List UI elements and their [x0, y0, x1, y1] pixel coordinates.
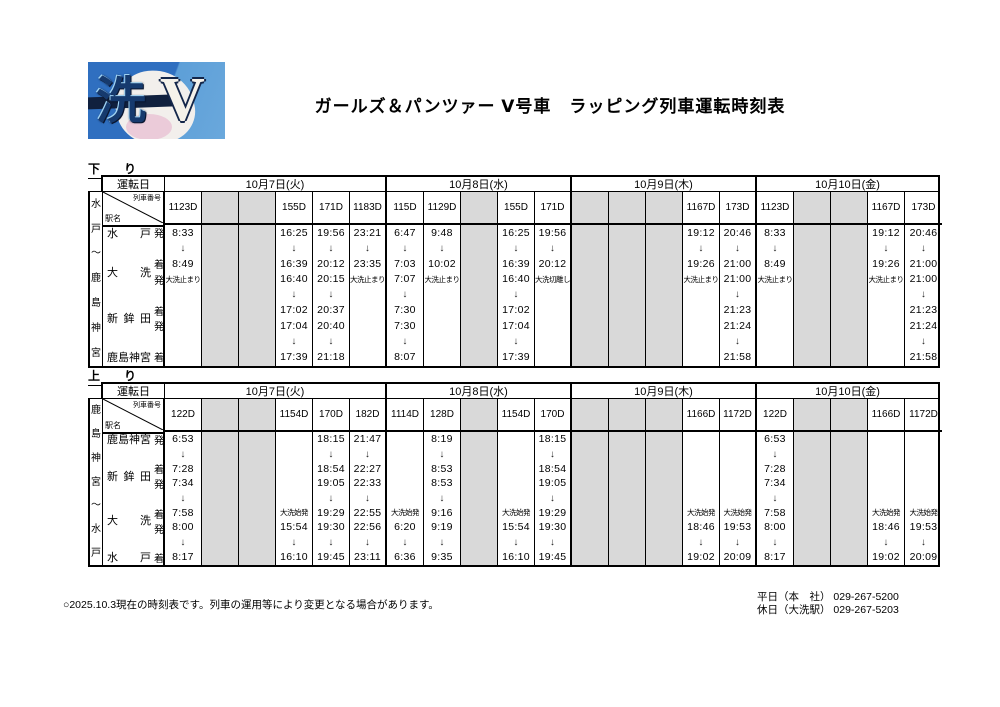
time-cell: 21:18	[313, 349, 349, 365]
empty-cell	[831, 256, 867, 272]
route-char: 宮	[91, 348, 101, 359]
train-number-cell: 1166D	[683, 399, 719, 432]
train-number-cell: 1172D	[720, 399, 755, 432]
train-times	[461, 225, 497, 365]
empty-train-number-cell	[831, 399, 867, 432]
empty-cell	[572, 476, 608, 491]
empty-cell	[461, 535, 497, 550]
empty-cell	[794, 287, 830, 303]
time-cell: 22:56	[350, 520, 385, 535]
arrow-cell: ↓	[535, 241, 570, 257]
time-cell: 19:12	[683, 225, 719, 241]
time-cell: 7:58	[757, 505, 793, 520]
empty-train-number-cell	[239, 399, 275, 432]
empty-cell	[868, 334, 904, 350]
arrow-cell: ↓	[498, 287, 534, 303]
arrow-cell: ↓	[165, 447, 201, 462]
empty-cell	[202, 550, 238, 565]
date-cell: 10月7日(火)	[165, 384, 387, 398]
route-char: ～	[91, 500, 101, 511]
train-number-cell: 1167D	[683, 192, 719, 225]
train-times: 19:12↓19:26大洗止まり	[683, 225, 719, 365]
empty-cell	[202, 303, 238, 319]
empty-cell	[461, 461, 497, 476]
date-cell: 10月7日(火)	[165, 177, 387, 191]
empty-cell	[683, 287, 719, 303]
empty-cell	[202, 225, 238, 241]
station-name: 新鉾田	[103, 461, 153, 490]
time-cell: 21:00	[720, 256, 755, 272]
date-cell: 10月8日(水)	[387, 384, 572, 398]
empty-cell	[794, 318, 830, 334]
note-cell: 大洗止まり	[350, 272, 385, 288]
empty-cell	[461, 287, 497, 303]
time-cell: 6:53	[757, 432, 793, 447]
empty-cell	[683, 476, 719, 491]
station-name-char: 島	[118, 349, 129, 365]
time-cell: 21:23	[720, 303, 755, 319]
empty-train-number-cell	[572, 192, 608, 225]
station-label: 鹿島神宮発	[103, 432, 165, 447]
empty-cell	[609, 349, 645, 365]
station-suffix: 着発	[153, 303, 165, 334]
contact-info: 平日（本 社） 029-267-5200 休日（大洗駅） 029-267-520…	[757, 591, 899, 617]
empty-cell	[646, 535, 682, 550]
empty-cell	[794, 349, 830, 365]
empty-cell	[609, 241, 645, 257]
time-cell: 20:09	[905, 550, 942, 565]
empty-cell	[498, 476, 534, 491]
time-cell: 17:39	[276, 349, 312, 365]
empty-cell	[461, 491, 497, 506]
empty-cell	[683, 334, 719, 350]
empty-train-number-cell	[609, 399, 645, 432]
station-name-char: 田	[140, 310, 151, 326]
train-number-cell: 1123D	[165, 192, 201, 225]
train-times	[609, 225, 645, 365]
station-suffix-char: 着	[154, 349, 164, 364]
train-times	[202, 225, 238, 365]
empty-cell	[831, 303, 867, 319]
time-cell: 18:15	[535, 432, 570, 447]
empty-cell	[720, 491, 755, 506]
train-column: 115D6:47↓7:037:07↓7:307:30↓8:07	[387, 192, 424, 366]
empty-cell	[794, 520, 830, 535]
route-char: 戸	[91, 548, 101, 559]
empty-cell	[276, 491, 312, 506]
station-suffix: 着	[153, 349, 165, 365]
empty-cell	[868, 432, 904, 447]
empty-cell	[239, 535, 275, 550]
route-char: 島	[91, 298, 101, 309]
train-no-header-label: 列車番号	[133, 193, 161, 203]
date-header-row: 運転日10月7日(火)10月8日(水)10月9日(木)10月10日(金)	[101, 175, 940, 191]
gray-column	[646, 192, 683, 366]
empty-cell	[646, 349, 682, 365]
station-name: 水戸	[103, 550, 153, 565]
time-cell: 8:53	[424, 461, 460, 476]
empty-cell	[239, 505, 275, 520]
time-cell: 21:58	[905, 349, 942, 365]
empty-cell	[831, 491, 867, 506]
time-cell: 23:21	[350, 225, 385, 241]
route-char: ～	[91, 248, 101, 259]
route-label: 鹿島神宮～水戸	[90, 399, 103, 565]
empty-cell	[239, 256, 275, 272]
empty-cell	[831, 550, 867, 565]
time-cell: 8:33	[757, 225, 793, 241]
arrow-cell: ↓	[276, 334, 312, 350]
empty-cell	[831, 334, 867, 350]
train-column: 155D16:25↓16:3916:40↓17:0217:04↓17:39	[276, 192, 313, 366]
arrow-cell: ↓	[350, 447, 385, 462]
station-label: 新鉾田着発	[103, 303, 165, 334]
empty-cell	[609, 550, 645, 565]
empty-cell	[757, 287, 793, 303]
logo-kanji: 洗	[96, 74, 146, 128]
empty-cell	[387, 476, 423, 491]
empty-cell	[424, 318, 460, 334]
page-title: ガールズ＆パンツァー Ⅴ号車 ラッピング列車運転時刻表	[250, 92, 850, 117]
empty-cell	[905, 447, 942, 462]
note-cell: 大洗始発	[720, 505, 755, 520]
empty-cell	[461, 432, 497, 447]
train-times: 19:12↓19:26大洗止まり	[868, 225, 904, 365]
time-cell: 10:02	[424, 256, 460, 272]
time-cell: 22:33	[350, 476, 385, 491]
time-cell: 22:55	[350, 505, 385, 520]
train-times: 大洗始発15:54↓16:10	[498, 432, 534, 564]
train-number-cell: 1129D	[424, 192, 460, 225]
empty-cell	[831, 272, 867, 288]
train-column: 1123D8:33↓8:49大洗止まり	[165, 192, 202, 366]
empty-cell	[831, 225, 867, 241]
empty-cell	[794, 225, 830, 241]
train-times: 大洗始発15:54↓16:10	[276, 432, 312, 564]
empty-cell	[794, 432, 830, 447]
empty-cell	[831, 447, 867, 462]
time-cell: 8:19	[424, 432, 460, 447]
empty-cell	[202, 241, 238, 257]
empty-cell	[683, 461, 719, 476]
train-times: 18:15↓18:5419:05↓19:2919:30↓19:45	[313, 432, 349, 564]
train-column: 171D19:56↓20:1220:15↓20:3720:40↓21:18	[313, 192, 350, 366]
empty-cell	[609, 432, 645, 447]
empty-cell	[202, 520, 238, 535]
empty-cell	[572, 256, 608, 272]
gray-column	[646, 399, 683, 565]
empty-cell	[387, 447, 423, 462]
train-times: 大洗始発18:46↓19:02	[868, 432, 904, 564]
station-name-char: 島	[118, 431, 129, 447]
empty-cell	[831, 287, 867, 303]
time-cell: 19:45	[313, 550, 349, 565]
time-cell: 7:34	[757, 476, 793, 491]
empty-cell	[424, 349, 460, 365]
time-cell: 20:40	[313, 318, 349, 334]
arrow-cell: ↓	[276, 287, 312, 303]
time-cell: 16:39	[498, 256, 534, 272]
time-cell: 16:25	[498, 225, 534, 241]
empty-cell	[646, 256, 682, 272]
train-column: 170D18:15↓18:5419:05↓19:2919:30↓19:45	[535, 399, 572, 565]
arrow-cell: ↓	[720, 287, 755, 303]
time-cell: 19:05	[535, 476, 570, 491]
train-number-cell: 1154D	[276, 399, 312, 432]
time-cell: 19:12	[868, 225, 904, 241]
empty-cell	[794, 505, 830, 520]
time-cell: 18:54	[313, 461, 349, 476]
train-times	[646, 225, 682, 365]
train-column: 1172D大洗始発19:53↓20:09	[720, 399, 757, 565]
arrow-cell: ↓	[165, 535, 201, 550]
empty-cell	[646, 550, 682, 565]
empty-cell	[535, 318, 570, 334]
time-cell: 8:49	[757, 256, 793, 272]
empty-cell	[239, 225, 275, 241]
empty-cell	[165, 334, 201, 350]
empty-cell	[276, 447, 312, 462]
gray-column	[461, 192, 498, 366]
station-name: 大洗	[103, 256, 153, 287]
time-cell: 21:24	[720, 318, 755, 334]
gray-column	[794, 399, 831, 565]
contact-holiday: 休日（大洗駅） 029-267-5203	[757, 604, 899, 617]
empty-cell	[794, 476, 830, 491]
empty-cell	[609, 535, 645, 550]
empty-cell	[424, 334, 460, 350]
arrow-cell: ↓	[313, 241, 349, 257]
time-cell: 18:15	[313, 432, 349, 447]
train-times	[646, 432, 682, 564]
gray-column	[572, 192, 609, 366]
empty-train-number-cell	[646, 399, 682, 432]
train-times	[239, 432, 275, 564]
footer-note: ○2025.10.3現在の時刻表です。列車の運用等により変更となる場合があります…	[63, 597, 439, 612]
arrow-cell: ↓	[313, 535, 349, 550]
empty-cell	[831, 241, 867, 257]
empty-cell	[239, 272, 275, 288]
train-number-cell: 170D	[535, 399, 570, 432]
station-suffix: 着	[153, 550, 165, 565]
empty-cell	[202, 349, 238, 365]
empty-cell	[461, 334, 497, 350]
train-number-cell: 173D	[905, 192, 942, 225]
arrow-cell: ↓	[276, 241, 312, 257]
train-number-cell: 122D	[165, 399, 201, 432]
time-cell: 7:03	[387, 256, 423, 272]
arrow-cell: ↓	[720, 334, 755, 350]
empty-cell	[609, 256, 645, 272]
empty-cell	[461, 550, 497, 565]
time-cell: 19:02	[683, 550, 719, 565]
empty-cell	[868, 461, 904, 476]
note-cell: 大洗止まり	[424, 272, 460, 288]
date-cell: 10月9日(木)	[572, 384, 757, 398]
train-column: 1183D23:21↓23:35大洗止まり	[350, 192, 387, 366]
arrow-cell: ↓	[387, 241, 423, 257]
empty-cell	[202, 272, 238, 288]
time-cell: 7:28	[757, 461, 793, 476]
station-label: 新鉾田着発	[103, 461, 165, 490]
train-times: 大洗始発19:53↓20:09	[720, 432, 755, 564]
empty-cell	[646, 241, 682, 257]
empty-cell	[757, 349, 793, 365]
note-cell: 大洗始発	[683, 505, 719, 520]
empty-cell	[683, 491, 719, 506]
arrow-cell: ↓	[498, 334, 534, 350]
time-cell: 19:30	[313, 520, 349, 535]
empty-cell	[831, 505, 867, 520]
empty-cell	[165, 349, 201, 365]
empty-cell	[239, 349, 275, 365]
empty-cell	[165, 287, 201, 303]
station-suffix-char: 着	[154, 256, 164, 271]
train-number-cell: 1183D	[350, 192, 385, 225]
train-times: 8:19↓8:538:53↓9:169:19↓9:35	[424, 432, 460, 564]
empty-cell	[535, 303, 570, 319]
time-cell: 15:54	[276, 520, 312, 535]
route-char: 神	[91, 323, 101, 334]
empty-cell	[461, 520, 497, 535]
empty-cell	[350, 318, 385, 334]
train-number-cell: 122D	[757, 399, 793, 432]
route-char: 鹿	[91, 273, 101, 284]
empty-cell	[646, 287, 682, 303]
train-column: 1114D大洗始発6:20↓6:36	[387, 399, 424, 565]
empty-cell	[868, 349, 904, 365]
gray-column	[609, 192, 646, 366]
time-cell: 6:53	[165, 432, 201, 447]
empty-cell	[572, 447, 608, 462]
empty-cell	[831, 535, 867, 550]
gray-column	[461, 399, 498, 565]
time-cell: 19:29	[313, 505, 349, 520]
station-name-char: 大	[107, 512, 118, 528]
time-cell: 18:46	[868, 520, 904, 535]
time-cell: 19:56	[313, 225, 349, 241]
empty-cell	[794, 550, 830, 565]
time-cell: 22:27	[350, 461, 385, 476]
station-name-char: 鹿	[107, 431, 118, 447]
empty-cell	[350, 349, 385, 365]
train-times: 16:25↓16:3916:40↓17:0217:04↓17:39	[276, 225, 312, 365]
time-cell: 17:39	[498, 349, 534, 365]
station-name-char: 水	[107, 549, 118, 565]
note-cell: 大洗始発	[276, 505, 312, 520]
empty-cell	[905, 461, 942, 476]
date-cell: 10月8日(水)	[387, 177, 572, 191]
empty-cell	[572, 505, 608, 520]
time-cell: 8:49	[165, 256, 201, 272]
time-cell: 17:02	[276, 303, 312, 319]
train-column: 182D21:47↓22:2722:33↓22:5522:56↓23:11	[350, 399, 387, 565]
empty-cell	[794, 334, 830, 350]
arrow-cell: ↓	[498, 535, 534, 550]
time-cell: 15:54	[498, 520, 534, 535]
note-cell: 大洗始発	[387, 505, 423, 520]
gray-column	[202, 399, 239, 565]
station-name-header-label: 駅名	[105, 420, 121, 431]
empty-cell	[461, 318, 497, 334]
station-name: 鹿島神宮	[103, 349, 153, 365]
station-name-char: 神	[129, 349, 140, 365]
station-name-char: 宮	[140, 431, 151, 447]
arrow-cell: ↓	[535, 535, 570, 550]
station-suffix-char: 着	[154, 506, 164, 521]
station-name: 水戸	[103, 225, 153, 241]
train-times: 18:15↓18:5419:05↓19:2919:30↓19:45	[535, 432, 570, 564]
empty-cell	[535, 334, 570, 350]
gray-column	[239, 192, 276, 366]
empty-cell	[609, 318, 645, 334]
empty-cell	[794, 491, 830, 506]
train-number-cell: 1172D	[905, 399, 942, 432]
empty-cell	[794, 447, 830, 462]
empty-train-number-cell	[646, 192, 682, 225]
station-suffix-char: 着	[154, 461, 164, 476]
train-times: 6:53↓7:287:34↓7:588:00↓8:17	[757, 432, 793, 564]
arrow-cell: ↓	[424, 447, 460, 462]
station-name: 大洗	[103, 506, 153, 535]
station-suffix: 着発	[153, 461, 165, 490]
note-cell: 大洗始発	[905, 505, 942, 520]
time-cell: 16:39	[276, 256, 312, 272]
arrow-cell: ↓	[350, 535, 385, 550]
station-label: 水戸発	[103, 225, 165, 241]
empty-cell	[461, 349, 497, 365]
route-char: 島	[91, 429, 101, 440]
empty-cell	[572, 461, 608, 476]
arrow-cell: ↓	[905, 287, 942, 303]
time-cell: 19:53	[720, 520, 755, 535]
train-column: 1129D9:48↓10:02大洗止まり	[424, 192, 461, 366]
time-cell: 16:40	[498, 272, 534, 288]
train-number-cell: 155D	[498, 192, 534, 225]
train-times: 6:47↓7:037:07↓7:307:30↓8:07	[387, 225, 423, 365]
time-cell: 8:00	[165, 520, 201, 535]
empty-cell	[831, 461, 867, 476]
train-column: 1154D大洗始発15:54↓16:10	[498, 399, 535, 565]
train-times: 19:56↓20:1220:15↓20:3720:40↓21:18	[313, 225, 349, 365]
arrow-cell: ↓	[387, 287, 423, 303]
empty-cell	[350, 334, 385, 350]
empty-cell	[424, 303, 460, 319]
empty-cell	[609, 287, 645, 303]
train-times	[831, 432, 867, 564]
empty-cell	[498, 432, 534, 447]
time-cell: 8:17	[757, 550, 793, 565]
time-cell: 21:00	[905, 256, 942, 272]
time-cell: 7:07	[387, 272, 423, 288]
arrow-cell: ↓	[720, 535, 755, 550]
time-cell: 20:46	[905, 225, 942, 241]
empty-cell	[868, 287, 904, 303]
note-cell: 大洗始発	[498, 505, 534, 520]
empty-cell	[572, 520, 608, 535]
date-cell: 10月10日(金)	[757, 384, 938, 398]
arrow-cell: ↓	[387, 535, 423, 550]
empty-cell	[683, 303, 719, 319]
empty-cell	[572, 535, 608, 550]
station-suffix: 着発	[153, 256, 165, 287]
station-name-char: 神	[129, 431, 140, 447]
arrow-cell: ↓	[424, 241, 460, 257]
arrow-cell: ↓	[720, 241, 755, 257]
empty-cell	[572, 241, 608, 257]
time-cell: 17:02	[498, 303, 534, 319]
arrow-cell: ↓	[905, 241, 942, 257]
